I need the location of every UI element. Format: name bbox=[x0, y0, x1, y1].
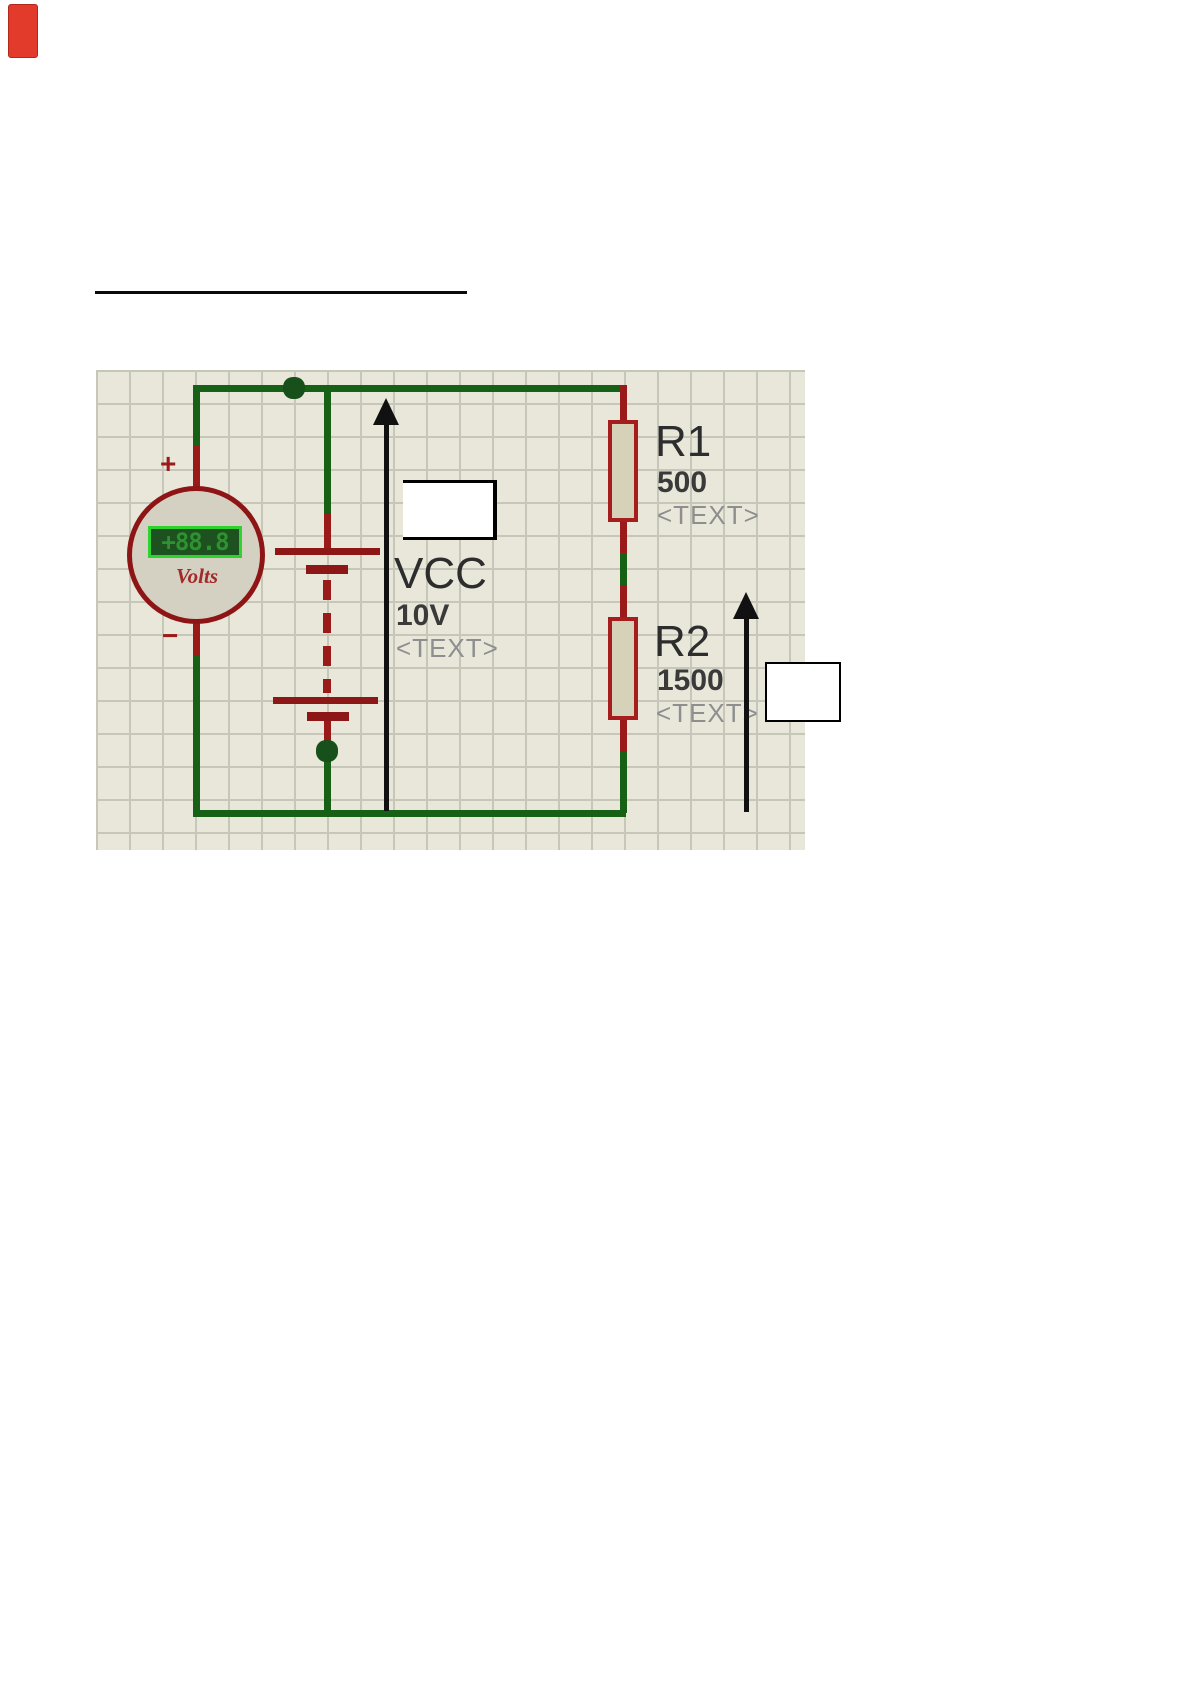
voltmeter-unit-label: Volts bbox=[128, 564, 266, 589]
top-rail-wire bbox=[193, 385, 626, 392]
r2-voltage-arrow-icon bbox=[744, 617, 749, 812]
power-source-ref-label: VCC bbox=[394, 552, 487, 596]
vcc-voltage-arrow-icon bbox=[384, 420, 389, 811]
bottom-rail-wire bbox=[193, 810, 626, 817]
power-source-text-placeholder: <TEXT> bbox=[396, 635, 499, 661]
voltmeter-bottom-wire bbox=[193, 656, 200, 817]
r2-value-label: 1500 bbox=[657, 666, 724, 696]
top-junction-dot bbox=[283, 377, 305, 399]
battery-cell2-short-plate bbox=[307, 712, 349, 721]
vcc-voltage-arrowhead-icon bbox=[373, 398, 399, 425]
page-corner-red-marker bbox=[8, 4, 38, 58]
battery-top-lead bbox=[324, 513, 331, 551]
battery-dashed-link bbox=[323, 580, 331, 693]
r1-top-lead bbox=[620, 385, 627, 420]
voltmeter-display: +88.8 bbox=[148, 526, 242, 558]
battery-top-wire bbox=[324, 388, 331, 513]
battery-cell1-short-plate bbox=[306, 565, 348, 574]
r1-bottom-lead bbox=[620, 522, 627, 553]
r2-bottom-lead bbox=[620, 720, 627, 752]
r1-ref-label: R1 bbox=[655, 420, 711, 464]
r1-r2-middle-wire bbox=[620, 553, 627, 585]
resistor-r2-body bbox=[608, 617, 638, 720]
voltmeter-top-lead bbox=[193, 445, 200, 488]
r1-text-placeholder: <TEXT> bbox=[657, 502, 760, 528]
r2-bottom-wire bbox=[620, 752, 627, 813]
battery-cell2-long-plate bbox=[273, 697, 378, 704]
voltmeter-top-wire bbox=[193, 385, 200, 445]
voltmeter-minus-label: − bbox=[162, 622, 178, 650]
resistor-r1-body bbox=[608, 420, 638, 522]
r2-voltage-arrowhead-icon bbox=[733, 592, 759, 619]
answer-box-vcc[interactable] bbox=[403, 480, 497, 540]
r1-value-label: 500 bbox=[657, 468, 707, 498]
voltmeter-plus-label: + bbox=[160, 450, 176, 478]
r2-top-lead bbox=[620, 585, 627, 617]
bottom-junction-dot bbox=[316, 740, 338, 762]
battery-cell1-long-plate bbox=[275, 548, 380, 555]
r2-ref-label: R2 bbox=[654, 620, 710, 664]
heading-underline bbox=[95, 291, 467, 294]
answer-box-r2[interactable] bbox=[765, 662, 841, 722]
power-source-value-label: 10V bbox=[396, 601, 449, 631]
